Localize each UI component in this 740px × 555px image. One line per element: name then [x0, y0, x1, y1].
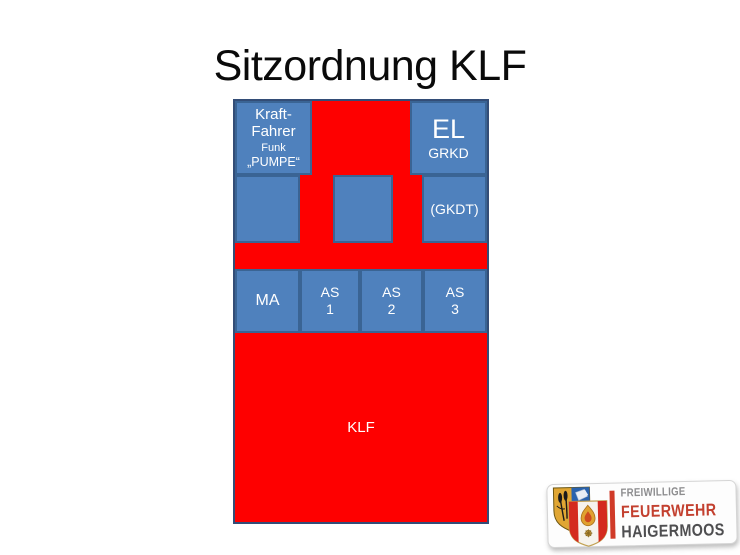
seat-as3: AS 3: [423, 269, 487, 333]
seat-gkdt-label: (GKDT): [430, 201, 478, 217]
vehicle-klf-label: KLF: [347, 419, 375, 436]
seat-as1: AS 1: [300, 269, 360, 333]
seat-gkdt: (GKDT): [422, 175, 487, 243]
seat-empty-left: [235, 175, 300, 243]
seat-as1-label-line1: AS: [321, 284, 340, 301]
seat-driver: Kraft- Fahrer Funk „PUMPE“: [235, 101, 312, 175]
fire-brigade-logo: FREIWILLIGE FEUERWEHR HAIGERMOOS: [546, 480, 737, 548]
seat-driver-label-line4: „PUMPE“: [247, 155, 300, 170]
seat-as2-label-line1: AS: [382, 284, 401, 301]
seat-as3-label-line2: 3: [451, 301, 459, 318]
page-title: Sitzordnung KLF: [0, 42, 740, 91]
seat-driver-label-line1: Kraft-: [255, 106, 292, 123]
seat-as2: AS 2: [360, 269, 423, 333]
logo-text: FREIWILLIGE FEUERWEHR HAIGERMOOS: [620, 485, 740, 542]
seat-driver-label-line3: Funk: [261, 142, 285, 155]
vehicle-klf-area: KLF: [235, 333, 487, 522]
seat-grkd-label: GRKD: [428, 144, 468, 162]
seat-driver-label-line2: Fahrer: [251, 123, 295, 140]
seat-as1-label-line2: 1: [326, 301, 334, 318]
coat-of-arms-icon: [550, 484, 609, 547]
seat-ma: MA: [235, 269, 300, 333]
seat-el-label: EL: [432, 115, 465, 144]
seating-diagram: Kraft- Fahrer Funk „PUMPE“ EL GRKD (GKDT…: [233, 99, 489, 524]
seat-as3-label-line1: AS: [446, 284, 465, 301]
logo-line-haigermoos: HAIGERMOOS: [621, 521, 725, 541]
seat-empty-middle: [333, 175, 393, 243]
logo-divider-bar: [609, 491, 615, 539]
logo-line-feuerwehr: FEUERWEHR: [621, 501, 725, 521]
seat-as2-label-line2: 2: [388, 301, 396, 318]
seat-ma-label: MA: [256, 292, 280, 310]
logo-line-freiwillige: FREIWILLIGE: [620, 485, 724, 500]
seat-el-grkd: EL GRKD: [410, 101, 487, 175]
